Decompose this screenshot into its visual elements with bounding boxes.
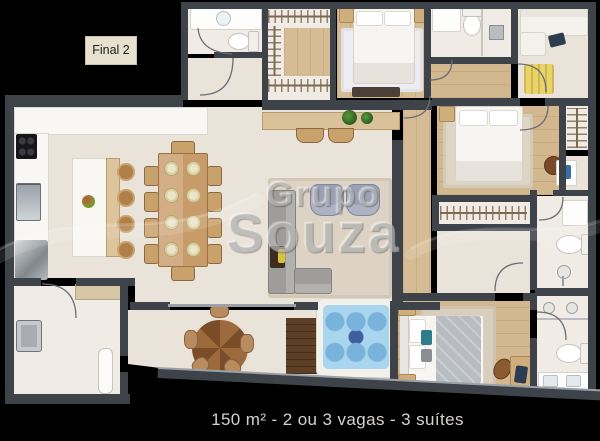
shower-head-icon [543,302,555,314]
hot-tub [316,298,398,378]
wall [530,338,537,388]
pillow [384,11,411,26]
toilet-tank [248,31,259,52]
console-stool-1 [296,128,324,143]
bar-stool-3 [117,215,135,233]
shower-hose [562,276,564,286]
sink-icon [566,375,581,387]
closet-hangers [268,79,330,92]
shower-head-icon [557,265,571,279]
dining-chair [144,192,159,212]
bar-stool-4 [117,241,135,259]
shower-drain-icon [489,25,504,40]
wall [432,195,439,231]
ironing-board-icon [98,348,113,394]
balcony-chair [240,334,254,353]
wall [424,57,518,64]
office-rug [524,64,554,94]
closet-hangers [268,26,281,76]
unit-label: Final 2 [85,36,137,65]
nightstand [439,106,455,122]
wall [588,2,596,391]
dining-chair [144,218,159,238]
place-setting [186,242,201,257]
kitchen-sink-icon [16,183,41,221]
laundry-sink-icon [16,320,42,352]
wall [530,190,537,290]
plant-icon [342,110,357,125]
dining-chair [207,244,222,264]
wall [392,293,495,301]
closet-hangers [440,206,527,220]
nightstand [339,8,354,23]
wall [183,2,596,9]
shower-glass-divider [537,318,588,320]
wall [545,98,596,106]
dining-chair-foot [171,266,195,281]
hallway-top-floor [431,64,511,98]
wall [214,52,262,58]
duvet [436,316,481,384]
laptop-icon [514,365,528,384]
dining-chair [207,166,222,186]
wall [294,302,318,310]
sink-icon [216,11,231,26]
wall [511,2,518,64]
pillow [489,110,518,126]
refrigerator-icon [15,240,48,280]
wall [394,302,440,310]
place-setting [164,161,179,176]
place-setting [164,242,179,257]
kitchen-counter-top [14,107,208,135]
place-setting [164,188,179,203]
wall [553,190,596,196]
hallway-vertical-floor [403,107,431,308]
sofa-chaise [294,268,332,294]
hot-tub-water [323,305,389,369]
shower-head-icon [566,302,578,314]
cooktop-icon [16,134,37,159]
fruit-bowl-icon [82,195,95,208]
teal-pillow [421,330,432,345]
sink-icon [543,375,558,387]
dining-chair [144,166,159,186]
console-stool-2 [328,128,354,143]
wall [559,103,566,156]
bathroom3-sink [562,200,588,226]
bar-stool-2 [117,189,135,207]
toilet-icon [556,344,582,363]
wall [5,95,14,404]
watermark-souza: Souza [226,200,401,265]
toilet-icon [463,14,481,36]
balcony-chair [184,330,198,349]
wall [424,2,431,59]
wall [432,224,535,231]
floorplan-image: Grupo Souza Final 2 150 m² - 2 ou 3 vaga… [0,0,600,441]
sliding-glass-door [168,304,296,307]
place-setting [186,215,201,230]
wall [424,59,431,98]
bar-stool-1 [117,163,135,181]
toilet-tank [462,8,482,17]
wall [181,2,188,100]
wall [535,288,596,296]
pillow [459,110,488,126]
wall [130,302,170,310]
wall [262,100,432,110]
office-sofa-corner [520,32,546,56]
wall [5,95,183,107]
wall [330,2,336,100]
toilet-icon [556,235,583,254]
anteroom-floor [437,231,530,293]
caption-text: 150 m² - 2 ou 3 vagas - 3 suítes [75,410,600,430]
place-setting [164,215,179,230]
bathroom2-vanity [432,8,461,32]
place-setting [186,188,201,203]
wall [120,286,128,356]
wall [559,156,566,192]
plant-icon [361,112,373,124]
pillow [356,11,383,26]
dining-chair [207,192,222,212]
wall [432,98,520,106]
wall [5,278,41,286]
wall [262,2,268,100]
wall [120,372,128,396]
toilet-icon [228,33,250,50]
wall [432,195,535,202]
dining-chair [207,218,222,238]
shower-glass-divider [481,8,483,56]
closet-hangers [567,108,587,148]
place-setting [186,161,201,176]
dining-chair [144,244,159,264]
gray-pillow [421,349,432,362]
wall [5,394,130,404]
entry-hall-floor [188,58,262,100]
wall [530,296,537,310]
wall [76,278,135,286]
closet1-wood-inset [284,28,330,76]
closet-hangers [268,10,330,23]
bedroom1-dresser [352,87,400,97]
wall [390,301,398,389]
